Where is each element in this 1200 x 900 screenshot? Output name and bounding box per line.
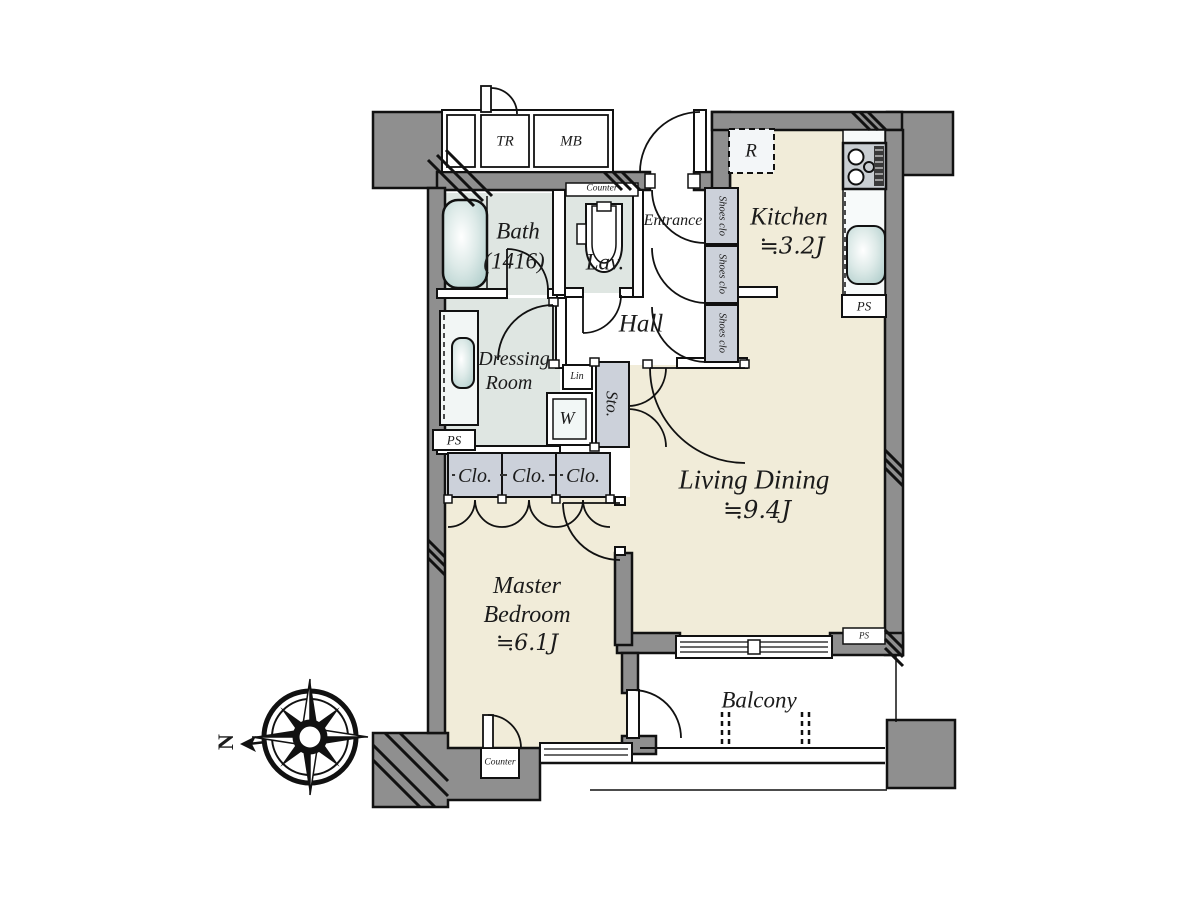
refrigerator-label: R [745, 142, 757, 161]
room-area-bedroom: ≒6.1J [496, 633, 558, 655]
meter-box-label: MB [560, 135, 582, 150]
compass-north-label: N [215, 734, 237, 750]
wash-basin [452, 338, 474, 388]
closet-label-2: Clo. [509, 466, 549, 486]
room-label-kitchen: Kitchen [750, 205, 828, 230]
balcony-partition-marks [722, 712, 809, 748]
shoes-closet-door-2 [652, 248, 705, 303]
closet-label-1: Clo. [455, 466, 495, 486]
floor-plan: TR MB R Entrance Kitchen ≒3.2J PS Counte… [0, 0, 1200, 900]
room-label-dressing-1: Dressing [478, 349, 549, 369]
room-label-bedroom-1: Master [493, 574, 561, 598]
balcony-door [627, 690, 639, 738]
pipe-space-label-living: PS [859, 632, 869, 641]
bathtub [443, 200, 487, 288]
shoes-closet-label-2: Shoes clo [716, 254, 727, 294]
entrance-door [694, 110, 706, 172]
bedroom-window [540, 743, 632, 763]
lavatory-door [583, 295, 621, 333]
floor-plan-drawing [0, 0, 1200, 900]
wall-block-top-left [373, 112, 443, 188]
room-area-kitchen: ≒3.2J [759, 236, 824, 259]
kitchen-sink [847, 226, 885, 284]
linen-label: Lin [570, 372, 583, 382]
room-label-living-dining: Living Dining [679, 467, 830, 494]
room-label-bedroom-2: Bedroom [483, 603, 570, 627]
shoes-closet-label-1: Shoes clo [716, 196, 727, 236]
storage-label: Sto. [604, 391, 621, 417]
washer-label: W [560, 409, 575, 427]
shoes-closet-label-3: Shoes clo [716, 313, 727, 353]
compass-rose [240, 679, 368, 795]
pipe-space-label-left: PS [447, 434, 461, 447]
room-label-entrance: Entrance [644, 213, 703, 229]
trunk-room-door [481, 86, 491, 112]
room-label-hall: Hall [619, 312, 663, 337]
counter-nook-door [483, 715, 493, 748]
room-label-dressing-2: Room [486, 373, 533, 393]
wall-block-bottom-right [887, 720, 955, 788]
trunk-room-label: TR [496, 135, 514, 150]
room-label-lavatory: Lav. [586, 251, 625, 274]
room-size-bath: (1416) [483, 250, 544, 273]
counter-label-lavatory: Counter [586, 184, 617, 194]
kitchen-half-wall [737, 287, 777, 297]
counter-label-bedroom: Counter [484, 758, 515, 768]
closet-label-3: Clo. [563, 466, 603, 486]
room-label-bath: Bath [496, 220, 539, 243]
room-area-living-dining: ≒9.4J [723, 498, 791, 522]
room-label-balcony: Balcony [721, 689, 796, 712]
pipe-space-label-kitchen: PS [857, 300, 871, 313]
